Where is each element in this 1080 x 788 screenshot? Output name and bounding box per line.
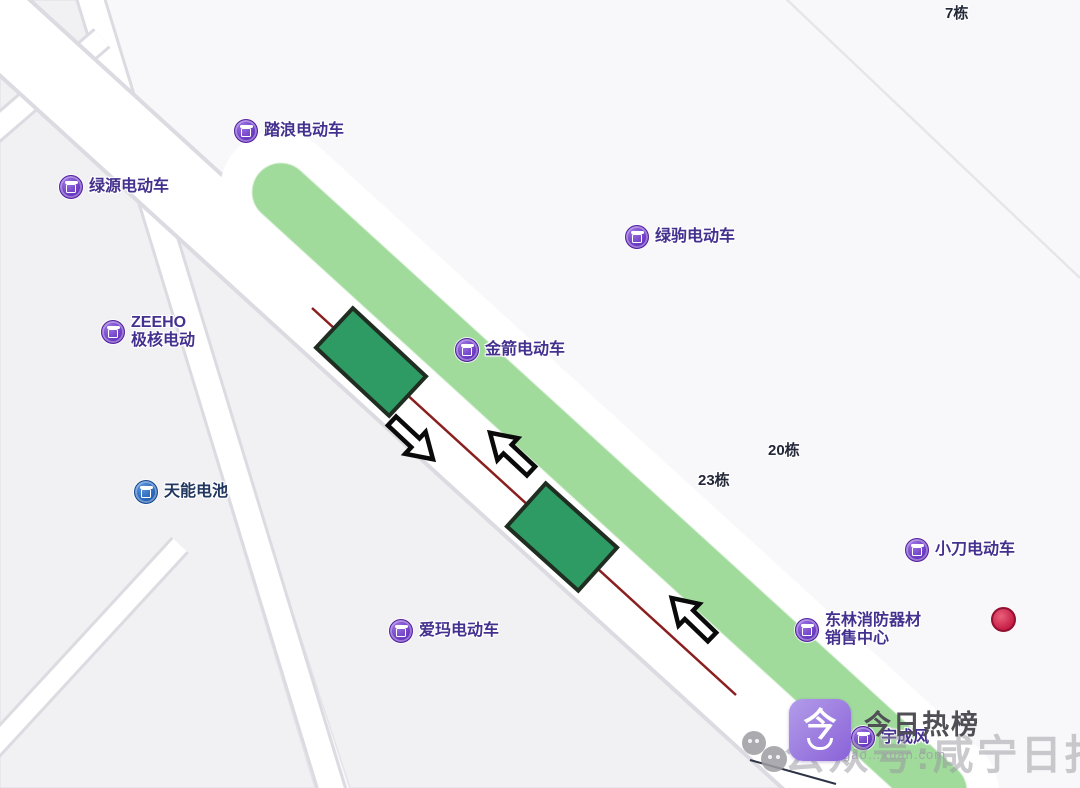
poi-marker-zeeho[interactable]: ZEEHO极核电动 [101, 314, 195, 351]
poi-marker-lvyuan[interactable]: 绿源电动车 [59, 175, 169, 199]
building-number-label: 23栋 [698, 469, 730, 490]
poi-marker-jinjian[interactable]: 金箭电动车 [455, 338, 565, 362]
shop-icon [59, 175, 83, 199]
poi-label: 小刀电动车 [935, 541, 1015, 559]
building-number-label: 20栋 [768, 439, 800, 460]
hotlist-logo-icon: 今 [789, 699, 851, 761]
shop-icon [389, 619, 413, 643]
shop-icon [234, 119, 258, 143]
poi-marker-lvju[interactable]: 绿驹电动车 [625, 225, 735, 249]
poi-marker-talang[interactable]: 踏浪电动车 [234, 119, 344, 143]
watermark-url: gao…xuan.com [843, 747, 946, 762]
poi-label: 绿源电动车 [89, 178, 169, 196]
poi-label: 踏浪电动车 [264, 122, 344, 140]
hotlist-logo-char: 今 [804, 710, 837, 740]
battery-shop-icon [134, 480, 158, 504]
wechat-icon [761, 746, 787, 772]
poi-label: 爱玛电动车 [419, 622, 499, 640]
red-pin-marker[interactable] [991, 607, 1016, 632]
shop-icon [625, 225, 649, 249]
shop-icon [795, 618, 819, 642]
poi-marker-donglin[interactable]: 东林消防器材销售中心 [795, 612, 921, 649]
poi-marker-xiaodao[interactable]: 小刀电动车 [905, 538, 1015, 562]
shop-icon [905, 538, 929, 562]
poi-label: 东林消防器材销售中心 [825, 612, 921, 649]
poi-label: 天能电池 [164, 483, 228, 501]
shop-icon [455, 338, 479, 362]
poi-label: 金箭电动车 [485, 341, 565, 359]
poi-label: ZEEHO极核电动 [131, 314, 195, 351]
poi-marker-tianneng[interactable]: 天能电池 [134, 480, 228, 504]
hotlist-logo-swoosh [807, 738, 833, 750]
poi-label: 绿驹电动车 [655, 228, 735, 246]
shop-icon [101, 320, 125, 344]
building-number-label: 7栋 [945, 2, 968, 23]
poi-marker-aima[interactable]: 爱玛电动车 [389, 619, 499, 643]
watermark-title: 今日热榜 [864, 703, 980, 742]
map-base-layer [0, 0, 1080, 788]
map-canvas[interactable]: 踏浪电动车绿源电动车ZEEHO极核电动绿驹电动车金箭电动车天能电池爱玛电动车小刀… [0, 0, 1080, 788]
